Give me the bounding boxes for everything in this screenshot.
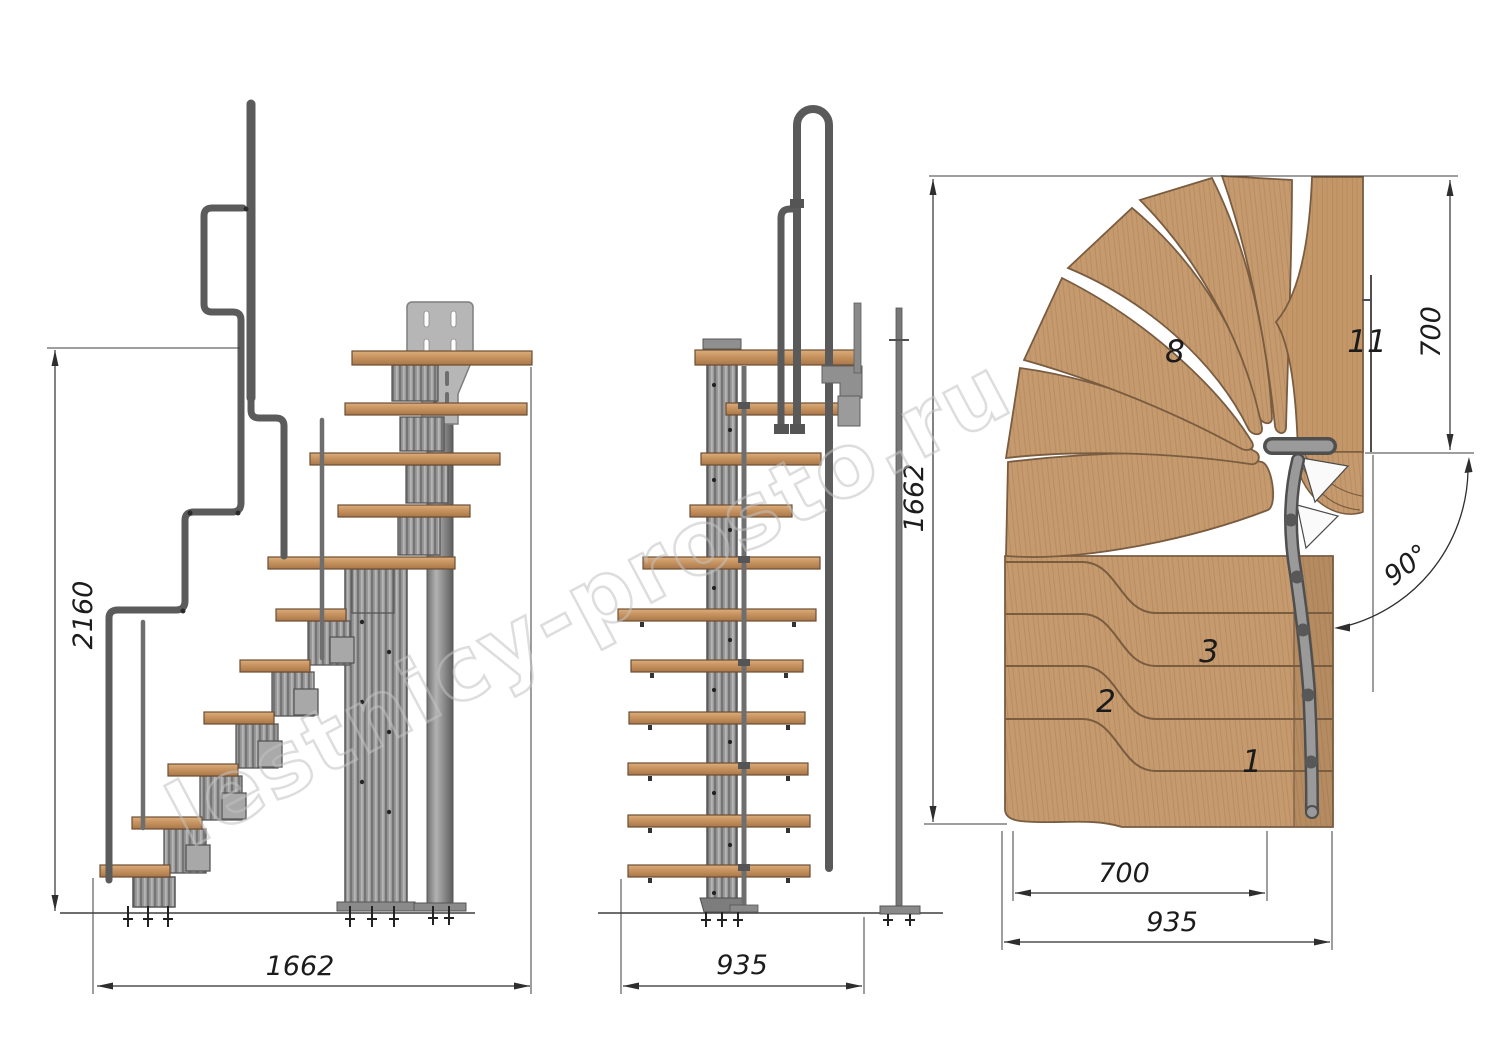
dim-plan-tread-width: 700: [1013, 831, 1267, 901]
plan-lower-flight: [1005, 556, 1333, 827]
dim-plan-depth-value: 1662: [899, 464, 930, 533]
side-elevation-view: 2160 1662: [47, 104, 532, 994]
front-handrail-loop: [774, 109, 829, 868]
step-label-1: 1: [1242, 744, 1262, 780]
dim-plan-landing-width: 700: [1365, 180, 1474, 453]
front-anchor-bolts: [701, 912, 743, 927]
step-label-3: 3: [1199, 634, 1219, 670]
plan-step-4: [1006, 453, 1273, 557]
dim-plan-total-width-value: 935: [1146, 907, 1198, 938]
staircase-technical-drawing: 2160 1662: [0, 0, 1500, 1061]
plan-view: 1 2 3 8 11 1662 700: [899, 176, 1474, 950]
side-center-column: [337, 566, 415, 911]
step-label-8: 8: [1165, 334, 1185, 370]
dim-plan-tread-width-value: 700: [1098, 858, 1150, 889]
front-wall-bracket: [822, 303, 920, 926]
dim-plan-total-width: 935: [1002, 831, 1332, 950]
dim-side-length-value: 1662: [266, 951, 335, 982]
step-label-11: 11: [1347, 324, 1386, 360]
side-treads: [100, 351, 532, 877]
plan-winder-treads: [1006, 176, 1292, 557]
step-label-2: 2: [1096, 684, 1116, 720]
dim-side-height-value: 2160: [68, 581, 99, 650]
dim-front-width-value: 935: [716, 950, 768, 981]
drawing-sheet: 2160 1662: [0, 0, 1500, 1061]
front-treads: [618, 350, 860, 877]
plan-turn-angle-value: 90°: [1378, 538, 1435, 592]
dim-plan-landing-width-value: 700: [1416, 306, 1447, 358]
front-elevation-view: 935: [598, 109, 943, 994]
